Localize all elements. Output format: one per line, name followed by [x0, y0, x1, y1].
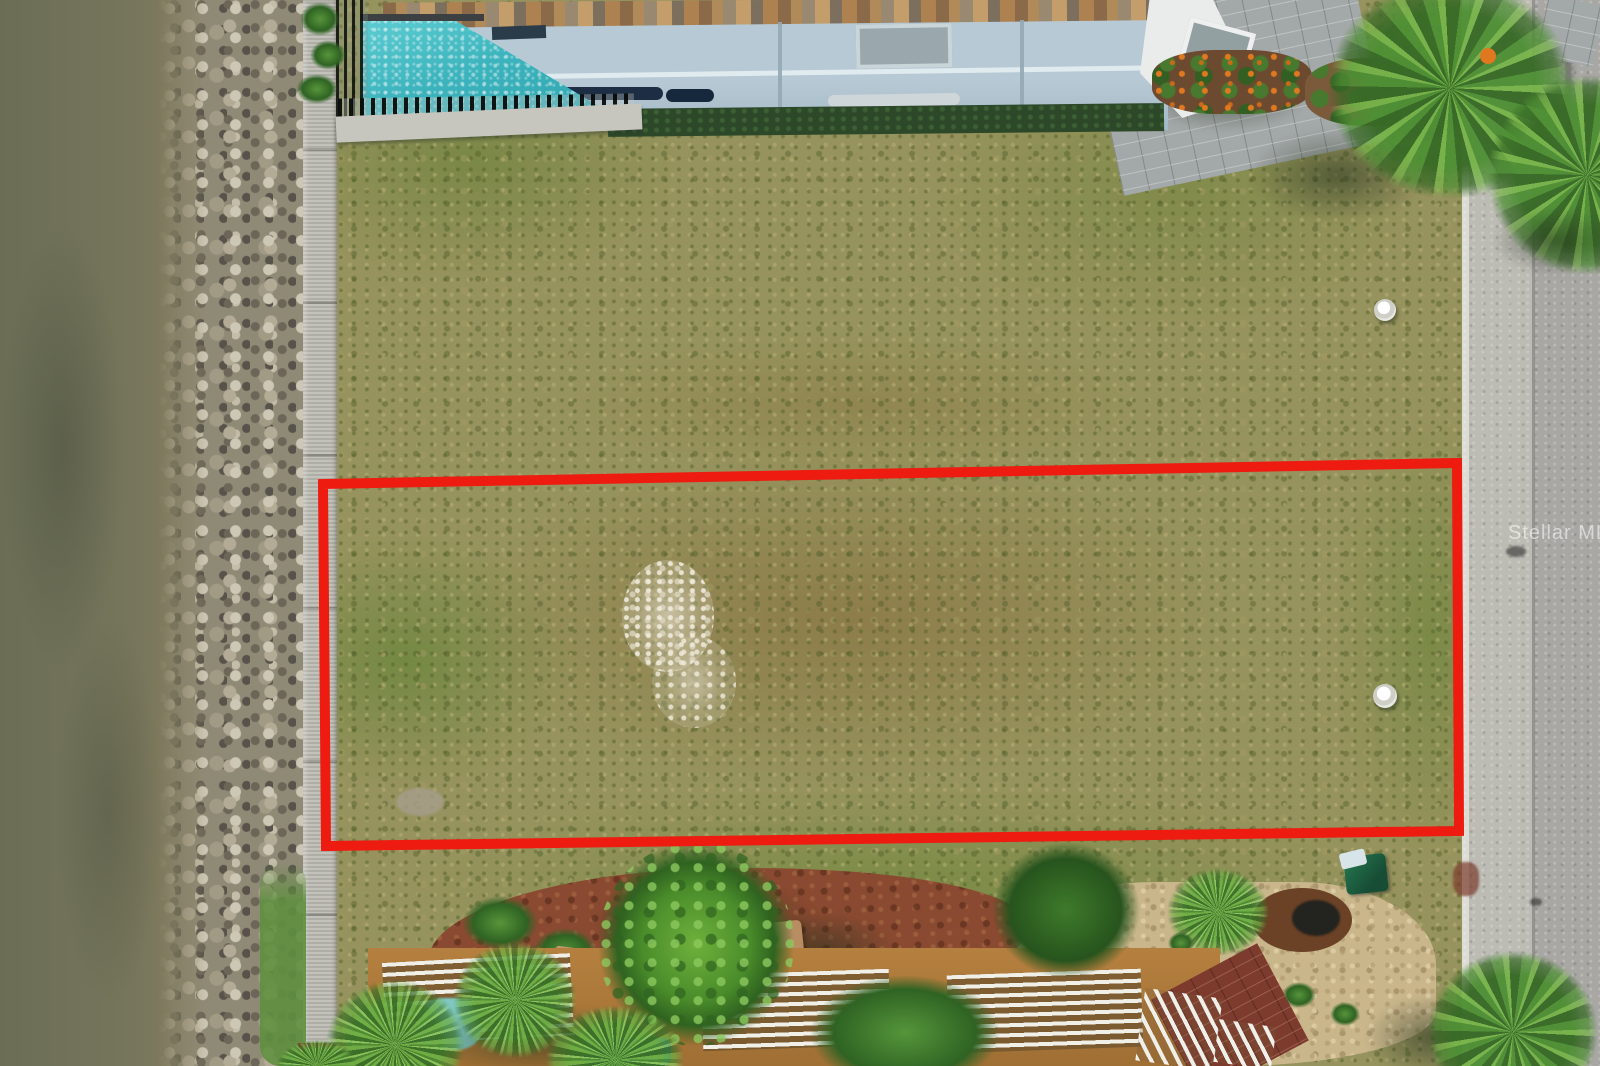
aerial-photo: Stellar MLS: [0, 0, 1600, 1066]
mls-watermark: Stellar MLS: [1508, 522, 1600, 545]
boundary-overlay: [0, 0, 1600, 1066]
lot-boundary-line: [323, 463, 1459, 846]
